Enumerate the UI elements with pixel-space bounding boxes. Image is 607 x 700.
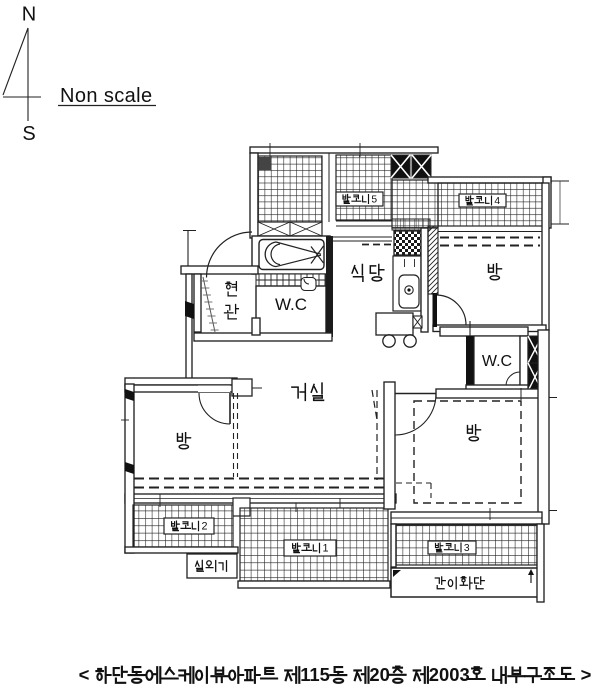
svg-text:W.C: W.C [482, 353, 512, 370]
svg-text:1: 1 [323, 543, 329, 555]
svg-text:<: < [79, 664, 90, 685]
svg-text:W.C: W.C [275, 295, 307, 314]
svg-text:20: 20 [369, 664, 389, 685]
svg-text:2: 2 [202, 521, 208, 533]
svg-text:S: S [22, 123, 35, 145]
svg-text:115: 115 [300, 664, 330, 685]
svg-text:>: > [581, 664, 592, 685]
svg-text:5: 5 [371, 194, 377, 205]
svg-text:3: 3 [464, 543, 470, 554]
svg-text:4: 4 [494, 196, 500, 207]
svg-text:2003: 2003 [429, 664, 470, 685]
svg-text:Non scale: Non scale [60, 85, 153, 107]
svg-text:N: N [22, 4, 36, 26]
